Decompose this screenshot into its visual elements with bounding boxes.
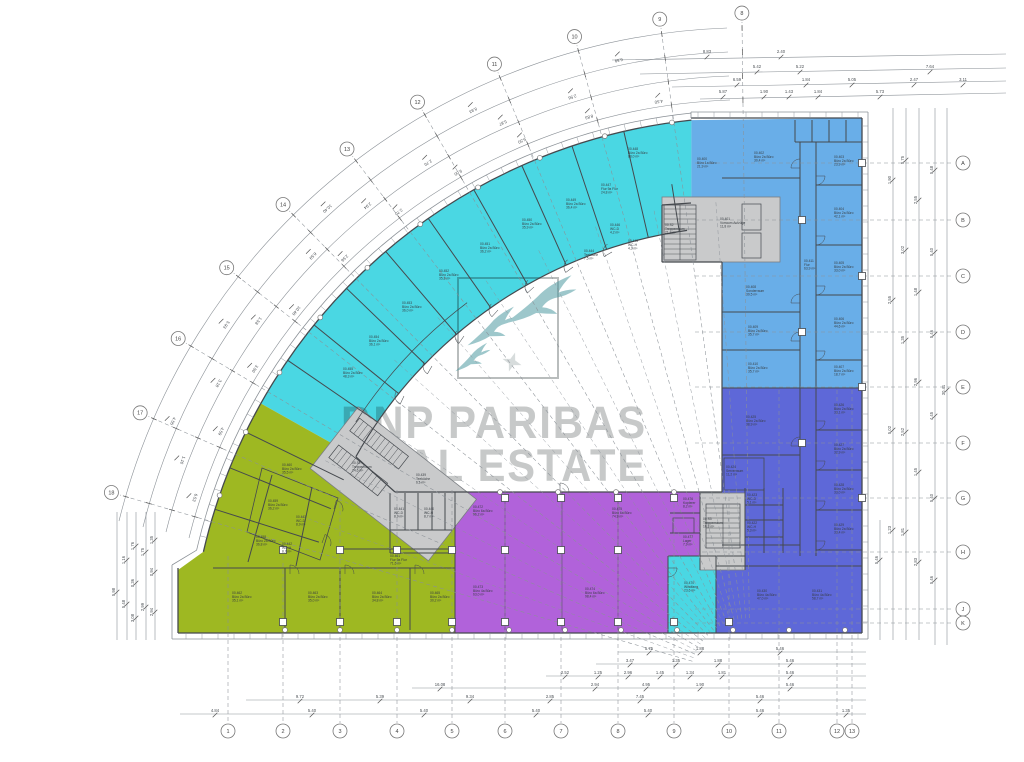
column: [558, 495, 565, 502]
facade-dot: [670, 120, 675, 125]
dimension-value: 3.08: [130, 613, 135, 622]
dimension-tick: [453, 165, 458, 170]
column: [615, 619, 622, 626]
dimension-value: 1.76: [130, 541, 135, 550]
room-label-line: 36,2 m²: [268, 507, 280, 511]
column: [615, 495, 622, 502]
dimension-tick: [289, 304, 294, 309]
room-label-line: 63,0 m²: [473, 593, 485, 597]
dimension-value: 5.39: [376, 694, 385, 699]
dimension-tick: [548, 699, 553, 704]
room-label-line: 32,9 m²: [834, 451, 846, 455]
dimension-value: 3.11: [959, 77, 968, 82]
dimension-tick: [291, 213, 295, 217]
dimension-value: 1.88: [714, 658, 723, 663]
grid-bubble-label: 17: [137, 411, 143, 417]
facade-dot: [243, 430, 248, 435]
column: [799, 329, 806, 336]
dimension-value: 5.40: [644, 708, 653, 713]
facade-dot: [365, 265, 370, 270]
dimension-tick: [778, 651, 783, 656]
dimension-value: 1.58: [254, 316, 263, 326]
dimension-tick: [306, 249, 311, 254]
dimension-value: 3.47: [626, 658, 635, 663]
column: [799, 440, 806, 447]
window-tick: [458, 191, 462, 197]
window-tick: [391, 238, 395, 243]
facade-dot: [217, 493, 222, 498]
room-label-line: 11,2 m²: [726, 473, 738, 477]
dimension-tick: [438, 687, 443, 692]
dimension-tick: [378, 699, 383, 704]
column: [502, 495, 509, 502]
dimension-tick: [468, 699, 473, 704]
room-label-line: 8,9 m²: [296, 523, 306, 527]
room-label-line: 11,8 m²: [720, 225, 732, 229]
facade-dot: [672, 490, 677, 495]
core-south: [700, 493, 745, 570]
room-label-line: 71,6 m²: [390, 562, 402, 566]
room-label-line: 38,9 m²: [746, 423, 758, 427]
window-tick: [444, 199, 448, 205]
column: [615, 547, 622, 554]
dimension-value: 5.46: [874, 555, 879, 564]
window-tick: [561, 142, 563, 149]
dimension-tick: [626, 675, 631, 680]
facade-dot: [507, 628, 512, 633]
room-label-line: 36,8 m²: [256, 543, 268, 547]
column: [558, 547, 565, 554]
dimension-value: 5.48: [929, 165, 934, 174]
room-label-line: 74,9 m²: [612, 515, 624, 519]
room-label-line: 33,4 m²: [834, 531, 846, 535]
facade-dot: [602, 134, 607, 139]
dimension-value: 1.45: [913, 467, 918, 476]
dimension-value: 6.50: [517, 137, 527, 145]
dimension-value: 5.46: [786, 682, 795, 687]
grid-bubble-label: K: [961, 621, 965, 627]
window-tick: [214, 489, 221, 491]
dimension-chain: [612, 54, 1006, 60]
room-label-line: 7,9 m²: [683, 543, 693, 547]
window-tick: [263, 385, 269, 389]
grid-bubble-label: 1: [226, 729, 229, 735]
column: [799, 217, 806, 224]
dimension-tick: [342, 264, 346, 268]
window-tick: [343, 282, 348, 287]
window-tick: [577, 137, 579, 144]
facade-dot: [563, 628, 568, 633]
dimension-value: 2.94: [362, 201, 372, 210]
window-tick: [546, 148, 549, 155]
dimension-value: 2.52: [900, 427, 905, 436]
dimension-value: 1.34: [686, 670, 695, 675]
dimension-value: 6.59: [614, 57, 624, 64]
column: [859, 384, 866, 391]
facade-dot: [338, 628, 343, 633]
dimension-value: 5.46: [756, 694, 765, 699]
window-tick: [226, 458, 232, 461]
window-tick: [255, 400, 261, 403]
facade-dot: [731, 628, 736, 633]
grid-bubble-label: 7: [559, 729, 562, 735]
dimension-value: 1.90: [760, 89, 769, 94]
grid-bubble-label: 13: [849, 729, 855, 735]
dimension-tick: [804, 83, 809, 88]
floor-plan-page: BNP PARIBAS REAL ESTATE: [0, 0, 1024, 762]
window-tick: [321, 306, 326, 311]
room-label: 00.443WC-D8,9 m²: [296, 515, 306, 527]
window-tick: [501, 167, 504, 173]
dimension-value: 8.83: [703, 49, 712, 54]
dimension-value: 9.00: [453, 168, 463, 177]
column: [449, 619, 456, 626]
room-label-line: 36,1 m²: [369, 343, 381, 347]
dimension-tick: [361, 199, 366, 204]
dimension-value: 4.55: [169, 416, 177, 426]
room-label-line: 24,8 m²: [601, 191, 613, 195]
room-label: 00.441WC-D8,9 m²: [394, 507, 404, 519]
dimension-tick: [762, 95, 767, 100]
dimension-tick: [758, 713, 763, 718]
dimension-tick: [422, 155, 427, 160]
dimension-tick: [658, 675, 663, 680]
grid-bubble-label: J: [962, 607, 965, 613]
room-label-line: 33,0 m²: [834, 269, 846, 273]
dimension-tick: [383, 197, 387, 202]
grid-bubble-label: 13: [344, 147, 350, 153]
dimension-value: 1.16: [121, 555, 126, 564]
dimension-value: 6.53: [191, 493, 198, 503]
room-label-line: 5,1 m²: [747, 501, 757, 505]
dimension-value: 1.43: [785, 89, 794, 94]
dimension-tick: [298, 699, 303, 704]
window-tick: [592, 132, 594, 139]
grid-bubble-label: 14: [280, 202, 286, 208]
dimension-tick: [779, 55, 784, 60]
room-label: 00.442WC-H8,7 m²: [282, 542, 292, 554]
room-label-line: 21,3 m²: [665, 231, 677, 235]
dimension-value: 5.98: [111, 587, 116, 596]
room-label-line: 23,6 m²: [684, 589, 696, 593]
dimension-value: 5.93: [222, 320, 231, 330]
room-label-line: 36,4 m²: [566, 206, 578, 210]
grid-bubble-label: 15: [224, 266, 230, 272]
dimension-value: 2.94: [149, 607, 154, 616]
dimension-value: 3.18: [214, 379, 223, 389]
grid-bubble-label: 12: [414, 100, 420, 106]
window-tick: [354, 270, 359, 275]
room-label: 00.446WC-D4,2 m²: [610, 223, 620, 235]
facade-dot: [556, 490, 561, 495]
grid-bubble-label: 10: [571, 34, 577, 40]
room-label-line: 16,8 m²: [703, 525, 715, 529]
room-label-line: 6,1 m²: [416, 481, 426, 485]
dimension-tick: [646, 713, 651, 718]
dimension-value: 5.42: [753, 64, 762, 69]
column: [671, 495, 678, 502]
dimension-tick: [961, 83, 966, 88]
dimension-value: 5.46: [776, 646, 785, 651]
dimension-value: 2.52: [561, 670, 570, 675]
window-tick: [430, 208, 434, 214]
window-tick: [300, 331, 306, 335]
room-label-line: 36,2 m²: [480, 250, 492, 254]
facade-dot: [537, 155, 542, 160]
room-label-line: 33,0 m²: [834, 491, 846, 495]
window-tick: [233, 443, 239, 446]
room-label-line: 88,0 m²: [628, 155, 640, 159]
dimension-value: 2.99: [140, 602, 145, 611]
dimension-value: 7.45: [636, 694, 645, 699]
dimension-tick: [628, 663, 633, 668]
dimension-value: 1.90: [696, 682, 705, 687]
building-zones: [178, 118, 862, 633]
dimension-tick: [716, 663, 721, 668]
dimension-tick: [665, 55, 666, 61]
room-label-line: 5,3 m²: [747, 529, 757, 533]
floor-plan-drawing: BNP PARIBAS REAL ESTATE: [0, 0, 1024, 762]
dimension-tick: [593, 687, 598, 692]
dimension-tick: [688, 675, 693, 680]
grid-bubble-label: 11: [776, 729, 782, 735]
room-label-line: 18,7 m²: [834, 373, 846, 377]
facade-dot: [843, 628, 848, 633]
dimension-value: 5.48: [121, 599, 126, 608]
dimension-tick: [174, 456, 179, 461]
dimension-tick: [698, 687, 703, 692]
facade-dot: [675, 628, 680, 633]
dimension-tick: [596, 675, 601, 680]
dimension-tick: [338, 251, 343, 256]
window-tick: [608, 128, 610, 135]
facade-dot: [476, 185, 481, 190]
dimension-value: 5.46: [756, 708, 765, 713]
facade-dot: [318, 315, 323, 320]
dimension-tick: [213, 426, 218, 431]
dimension-value: 5.87: [498, 119, 508, 127]
dimension-tick: [255, 290, 260, 294]
dimension-tick: [274, 305, 279, 309]
room-label-line: 35,7 m²: [748, 370, 760, 374]
facade-dot: [619, 628, 624, 633]
room-label-line: 24,6 m²: [352, 469, 364, 473]
dimension-value: 2.83: [913, 557, 918, 566]
room-label-line: 7,5 m²: [584, 257, 594, 261]
dimension-value: 10.40: [291, 305, 302, 317]
room-label-line: 8,9 m²: [394, 515, 404, 519]
column: [337, 547, 344, 554]
window-tick: [640, 121, 641, 128]
dimension-tick: [668, 79, 669, 85]
room-label-line: 4,3 m²: [628, 247, 638, 251]
window-tick: [220, 474, 227, 477]
room-label-line: 30,2 m²: [430, 599, 442, 603]
column: [726, 619, 733, 626]
dimension-value: 1.84: [802, 77, 811, 82]
grid-bubble-label: 16: [175, 336, 181, 342]
dimension-value: 1.35: [149, 535, 154, 544]
dimension-tick: [563, 675, 568, 680]
column: [859, 495, 866, 502]
grid-bubble-label: A: [961, 161, 965, 167]
dimension-tick: [698, 651, 703, 656]
column: [502, 619, 509, 626]
grid-bubble-label: 2: [281, 729, 284, 735]
dimension-tick: [422, 713, 427, 718]
room-label-line: 96,2 m²: [473, 513, 485, 517]
facade-dot: [450, 628, 455, 633]
dimension-tick: [247, 363, 252, 368]
dimension-chain: [672, 81, 1006, 87]
dimension-tick: [146, 503, 152, 505]
room-label-line: 39,5 m²: [746, 293, 758, 297]
dimension-value: 0.36: [130, 578, 135, 587]
dimension-value: 1.84: [814, 89, 823, 94]
dimension-value: 4.45: [929, 411, 934, 420]
facade-dot: [418, 222, 423, 227]
zone-south-wing-purple: [455, 492, 700, 633]
dimension-value: 5.46: [786, 670, 795, 675]
grid-bubble-label: 4: [395, 729, 398, 735]
dimension-value: 6.59: [733, 77, 742, 82]
dimension-tick: [735, 83, 740, 88]
room-label: 00.445WC-H4,3 m²: [628, 239, 638, 251]
room-label-line: 98,4 m²: [585, 595, 597, 599]
window-tick: [656, 118, 657, 125]
dimension-value: 1.35: [900, 335, 905, 344]
dimension-value: 2.85: [546, 694, 555, 699]
room-label-line: 33,1 m²: [834, 411, 846, 415]
dimension-value: 2.47: [910, 77, 919, 82]
dimension-value: 4.84: [211, 708, 220, 713]
room-label-line: 21,9 m²: [697, 165, 709, 169]
dimension-tick: [788, 675, 793, 680]
star-icon: [499, 349, 524, 374]
room-label-line: 8,2 m²: [683, 505, 693, 509]
dimension-value: 1.88: [696, 646, 705, 651]
dimension-tick: [674, 663, 679, 668]
dimension-tick: [798, 70, 803, 75]
grid-bubble-label: 9: [672, 729, 675, 735]
window-tick: [366, 259, 371, 264]
dimension-value: 5.40: [532, 708, 541, 713]
dimension-value: 9.72: [296, 694, 305, 699]
dimension-value: 1.23: [887, 525, 892, 534]
dimension-value: 8.83: [584, 114, 594, 121]
grid-bubble-label: 5: [450, 729, 453, 735]
grid-bubble-label: 11: [492, 62, 498, 68]
dimension-tick: [219, 319, 224, 324]
dimension-tick: [498, 115, 503, 120]
room-label: 00.422WC-H5,3 m²: [747, 521, 757, 533]
window-tick: [290, 345, 296, 349]
dimension-tick: [720, 675, 725, 680]
window-tick: [209, 504, 216, 506]
grid-bubble-label: H: [961, 550, 965, 556]
room-label-line: 30,4 m²: [754, 159, 766, 163]
dimension-value: 4.50: [654, 99, 663, 105]
room-label-line: 35,1 m²: [232, 599, 244, 603]
dimension-value: 5.87: [719, 89, 728, 94]
window-tick: [281, 358, 287, 362]
dimension-tick: [213, 713, 218, 718]
window-tick: [332, 294, 337, 299]
dimension-value: 2.56: [567, 93, 577, 100]
window-tick: [624, 124, 626, 131]
dimension-tick: [393, 205, 398, 210]
dimension-tick: [758, 699, 763, 704]
dimension-value: 2.40: [777, 49, 786, 54]
column: [394, 547, 401, 554]
column: [337, 619, 344, 626]
dimension-value: 5.40: [929, 247, 934, 256]
room-label-line: 58,7 m²: [812, 597, 824, 601]
window-tick: [272, 372, 278, 376]
dimension-value: 8.83: [468, 106, 478, 114]
dimension-value: 9.34: [466, 694, 475, 699]
room-label-line: 44,6 m²: [834, 325, 846, 329]
dimension-tick: [788, 663, 793, 668]
column: [859, 160, 866, 167]
room-label-line: 42,1 m²: [834, 215, 846, 219]
dimension-tick: [844, 713, 849, 718]
dimension-value: 5.05: [848, 77, 857, 82]
room-label-line: 35,7 m²: [748, 333, 760, 337]
column: [394, 619, 401, 626]
dimension-value: 1.81: [718, 670, 727, 675]
dimension-tick: [615, 52, 620, 57]
grid-bubble-label: E: [961, 385, 965, 391]
grid-bubble-label: B: [961, 218, 965, 224]
dimension-value: 2.70: [394, 208, 404, 217]
facade-dot: [277, 370, 282, 375]
dimension-value: 4.59: [217, 427, 225, 437]
room-label-line: 35,8 m²: [439, 277, 451, 281]
dimension-tick: [928, 70, 933, 75]
grid-bubble-label: 10: [726, 729, 732, 735]
dimension-value: 6.59: [308, 251, 318, 261]
dimension-value: 1.45: [656, 670, 665, 675]
grid-bubble-label: 3: [338, 729, 341, 735]
column: [280, 619, 287, 626]
dimension-tick: [211, 378, 216, 383]
dimension-value: 1.81: [900, 527, 905, 536]
dimension-value: 1.75: [140, 547, 145, 556]
room-label-line: 8,7 m²: [424, 515, 434, 519]
dimension-value: 5.75: [900, 155, 905, 164]
dimension-value: 7.64: [926, 64, 935, 69]
dimension-value: 3.50: [251, 364, 260, 374]
dimension-tick: [321, 202, 326, 207]
room-label-line: 35,5 m²: [282, 471, 294, 475]
dimension-tick: [230, 369, 235, 372]
room-label-line: 35,0 m²: [308, 599, 320, 603]
grid-bubble-label: 8: [616, 729, 619, 735]
dimension-value: 5.40: [308, 708, 317, 713]
dimension-value: 5.02: [887, 425, 892, 434]
dimension-value: 1.35: [672, 658, 681, 663]
grid-bubble-label: 18: [108, 490, 114, 496]
dimension-tick: [644, 687, 649, 692]
grid-bubble-label: G: [961, 496, 965, 502]
dimension-tick: [850, 83, 855, 88]
room-label-line: 34,8 m²: [372, 599, 384, 603]
dimension-value: 5.40: [420, 708, 429, 713]
column: [558, 619, 565, 626]
room-label-line: 8,7 m²: [282, 550, 292, 554]
grid-bubble-label: C: [961, 274, 965, 280]
